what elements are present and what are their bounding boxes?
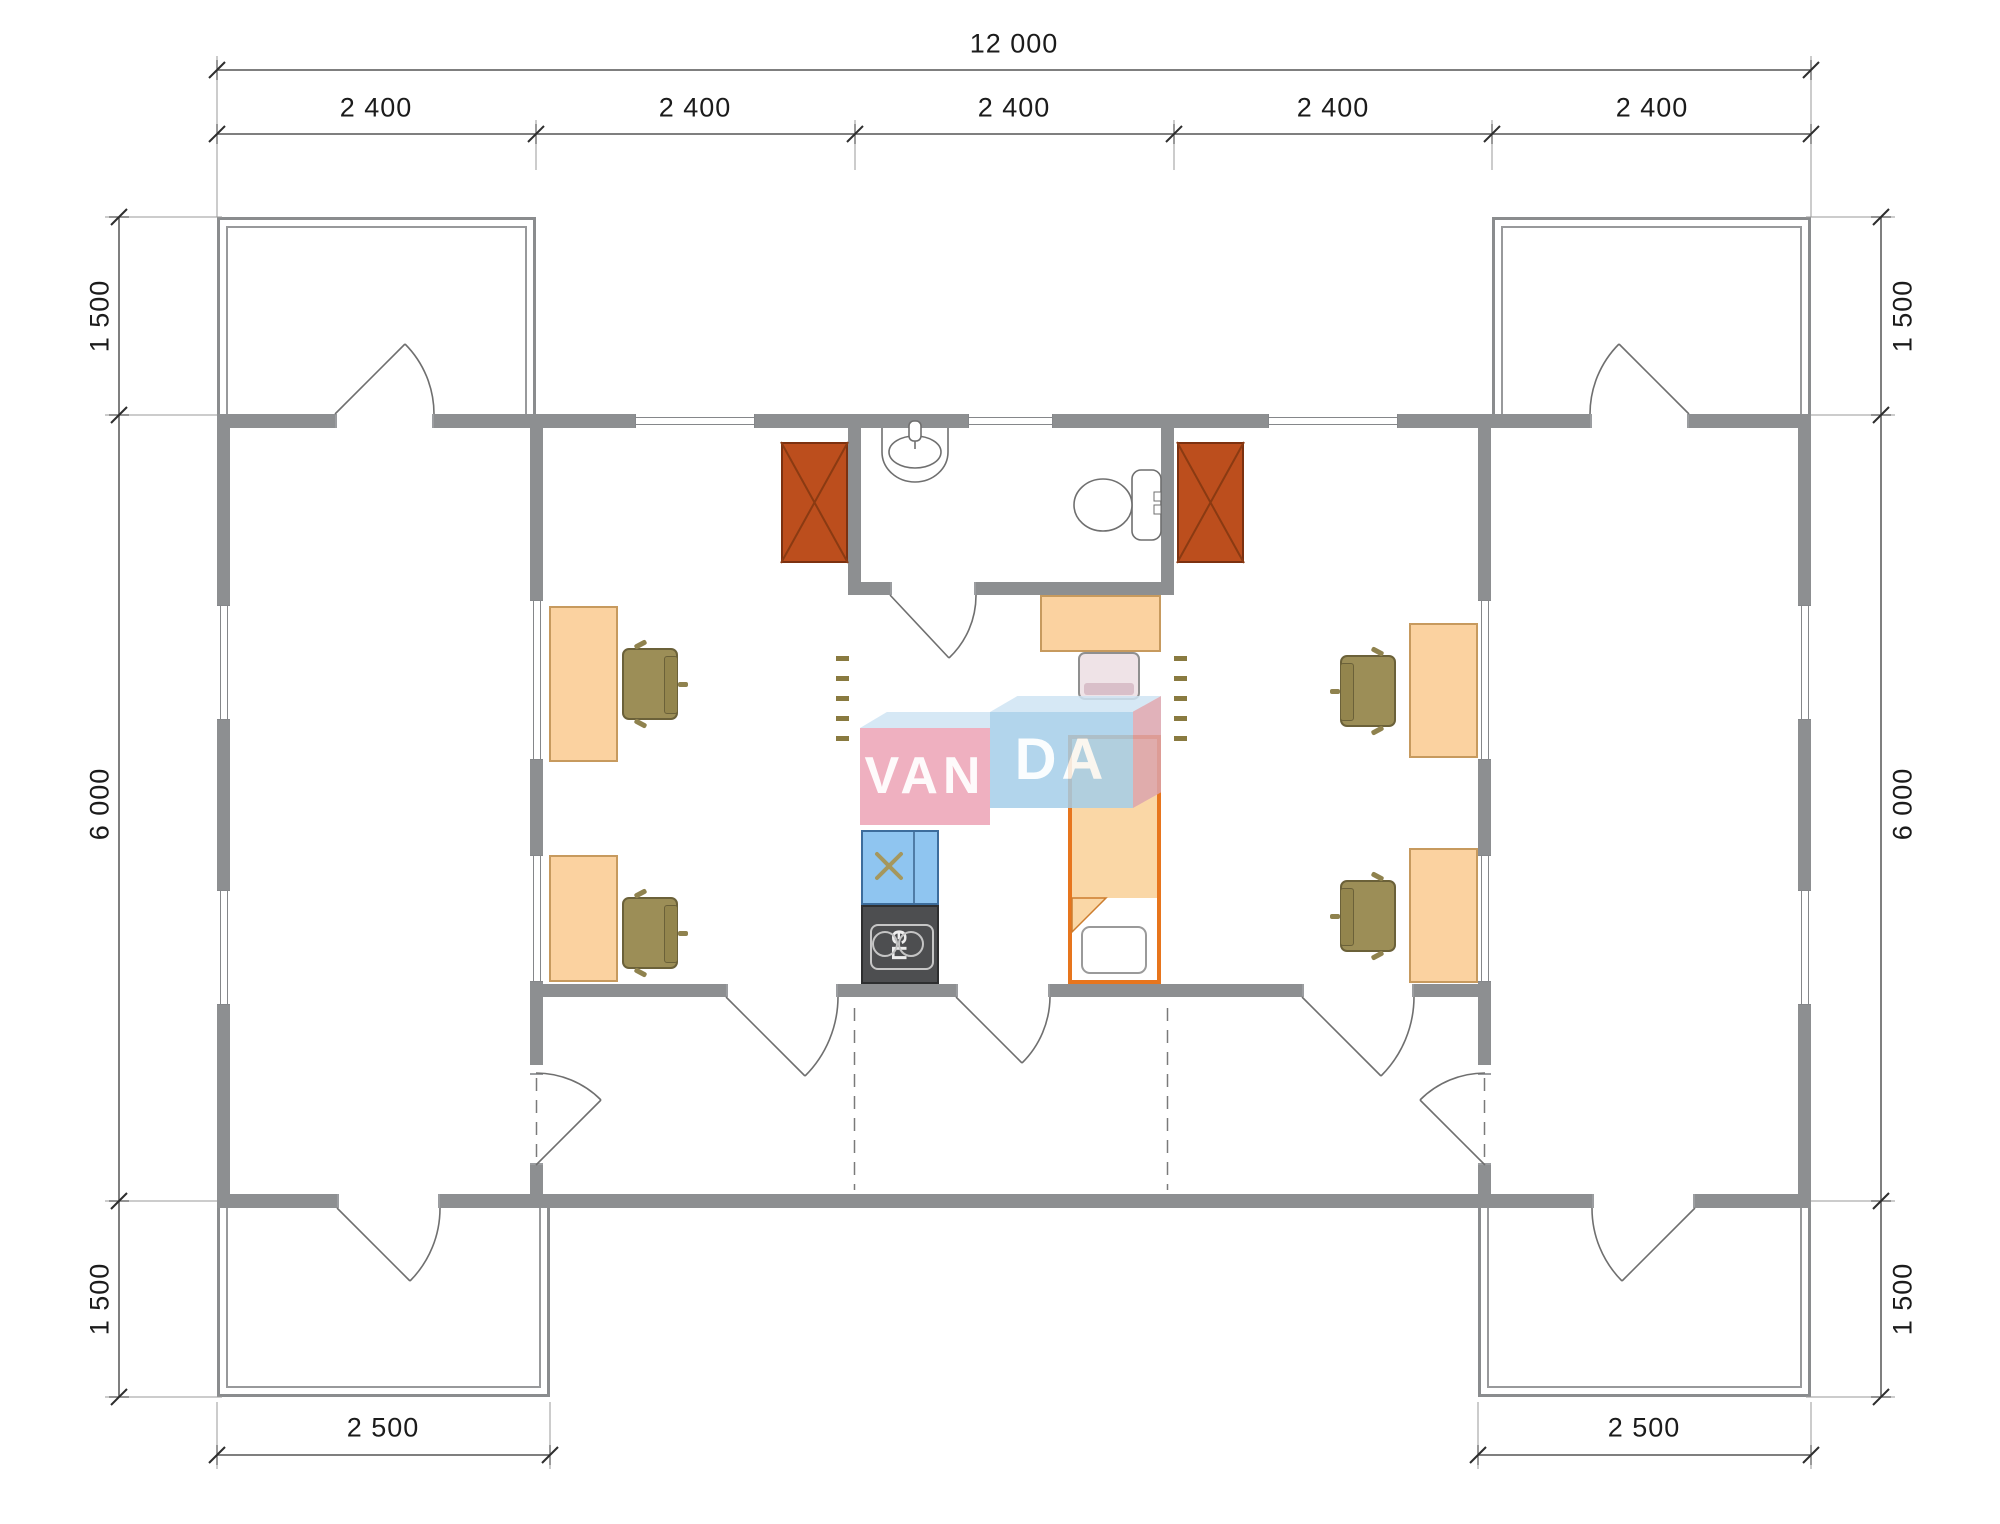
- coat-hook: [836, 656, 849, 661]
- wood-stove-right: [1177, 442, 1244, 563]
- chair-seat: [1084, 683, 1134, 695]
- chair-armrest: [1330, 689, 1340, 694]
- dim-total-width: 12 000: [970, 29, 1059, 60]
- door-opening-left-room: [726, 984, 838, 997]
- wash-basin-icon: [882, 421, 948, 482]
- window-left-room-1: [530, 600, 543, 760]
- door-opening-porch-bottom-right: [1592, 1194, 1695, 1208]
- chair-leg: [1371, 725, 1385, 736]
- wall-bottom: [217, 1194, 1811, 1208]
- chair-left-room-1: [622, 648, 678, 720]
- dim-module-3: 2 400: [978, 93, 1051, 124]
- chair-armrest: [678, 931, 688, 936]
- watermark-text-da: DA: [990, 712, 1133, 808]
- door-opening-bathroom: [890, 582, 976, 595]
- toilet-icon: [1074, 470, 1161, 540]
- dim-porch-bottom-left: 2 500: [347, 1413, 420, 1444]
- module-dashed-lines: [537, 1008, 1485, 1190]
- dim-module-5: 2 400: [1616, 93, 1689, 124]
- coat-hook: [1174, 656, 1187, 661]
- coat-hook: [836, 716, 849, 721]
- wall-corridor-b: [838, 984, 956, 997]
- bed-pillow: [1081, 926, 1147, 974]
- electric-stove-label: ПЭ: [863, 908, 938, 982]
- dim-left-top: 1 500: [85, 280, 116, 353]
- window-top-right-room: [1268, 414, 1398, 428]
- electric-stove: ПЭ: [861, 905, 939, 984]
- dim-left-middle: 6 000: [85, 768, 116, 841]
- window-right-room-1: [1478, 600, 1491, 760]
- dim-right-bottom: 1 500: [1888, 1263, 1919, 1336]
- wall-right: [1798, 414, 1811, 1208]
- wall-bath-south-b: [976, 582, 1161, 595]
- kitchen-sink-counter: [861, 830, 939, 905]
- chair-backrest: [664, 905, 678, 963]
- desk-left-room-1: [549, 606, 618, 762]
- desk-left-room-2: [549, 855, 618, 982]
- coat-hook: [836, 696, 849, 701]
- wall-left: [217, 414, 230, 1208]
- counter-divider: [913, 832, 915, 903]
- chair-armrest: [678, 682, 688, 687]
- coat-hook: [1174, 716, 1187, 721]
- door-opening-left-veranda: [530, 1073, 543, 1165]
- window-left-room-2: [530, 855, 543, 982]
- door-opening-right-room: [1302, 984, 1414, 997]
- porch-top-right-inner: [1501, 226, 1802, 415]
- chair-right-room-1: [1340, 655, 1396, 727]
- wall-bath-east: [1161, 428, 1174, 595]
- door-opening-porch-top-right: [1590, 414, 1689, 428]
- wood-stove-left: [781, 442, 848, 563]
- chair-leg: [634, 967, 648, 978]
- watermark-side-face-right: [1133, 696, 1161, 808]
- door-opening-porch-bottom-left: [337, 1194, 440, 1208]
- door-opening-central-room: [956, 984, 1050, 997]
- coat-hook: [1174, 696, 1187, 701]
- chair-backrest: [1340, 888, 1354, 946]
- chair-leg: [634, 718, 648, 729]
- desk-right-room-2: [1409, 848, 1478, 983]
- window-east-wall-1: [1798, 605, 1811, 720]
- chair-central-room: [1078, 652, 1140, 700]
- dim-module-1: 2 400: [340, 93, 413, 124]
- floor-plan: ПЭ: [0, 0, 2000, 1524]
- window-top-bathroom: [968, 414, 1053, 428]
- dim-left-bottom: 1 500: [85, 1263, 116, 1336]
- wall-bath-west: [848, 428, 861, 595]
- wall-leftroom-west-b: [530, 1165, 543, 1194]
- window-west-wall-2: [217, 890, 230, 1005]
- wall-rightroom-east-b: [1478, 1165, 1491, 1194]
- watermark-text-van: VAN: [860, 728, 990, 825]
- coat-hook: [836, 676, 849, 681]
- chair-leg: [1371, 871, 1385, 882]
- wall-corridor-a: [530, 984, 726, 997]
- coat-hook: [1174, 736, 1187, 741]
- desk-central-room: [1040, 595, 1161, 652]
- dim-right-top: 1 500: [1888, 280, 1919, 353]
- dim-module-4: 2 400: [1297, 93, 1370, 124]
- chair-backrest: [1340, 663, 1354, 721]
- chair-leg: [634, 639, 648, 650]
- dim-module-2: 2 400: [659, 93, 732, 124]
- watermark-top-face-right: [990, 696, 1161, 712]
- chair-backrest: [664, 656, 678, 714]
- chair-right-room-2: [1340, 880, 1396, 952]
- coat-hook: [1174, 676, 1187, 681]
- door-opening-porch-top-left: [335, 414, 434, 428]
- door-opening-right-veranda: [1478, 1073, 1491, 1165]
- porch-top-left-inner: [226, 226, 527, 415]
- window-west-wall-1: [217, 605, 230, 720]
- wall-corridor-c: [1050, 984, 1302, 997]
- porch-bottom-right-inner: [1487, 1208, 1802, 1388]
- chair-leg: [1371, 646, 1385, 657]
- dim-right-middle: 6 000: [1888, 768, 1919, 841]
- chair-armrest: [1330, 914, 1340, 919]
- dim-porch-bottom-right: 2 500: [1608, 1413, 1681, 1444]
- desk-right-room-1: [1409, 623, 1478, 758]
- window-top-left-room: [635, 414, 755, 428]
- coat-hook: [836, 736, 849, 741]
- chair-left-room-2: [622, 897, 678, 969]
- wall-bath-south-a: [861, 582, 890, 595]
- chair-leg: [1371, 950, 1385, 961]
- porch-bottom-left-inner: [226, 1208, 541, 1388]
- chair-leg: [634, 888, 648, 899]
- window-right-room-2: [1478, 855, 1491, 982]
- window-east-wall-2: [1798, 890, 1811, 1005]
